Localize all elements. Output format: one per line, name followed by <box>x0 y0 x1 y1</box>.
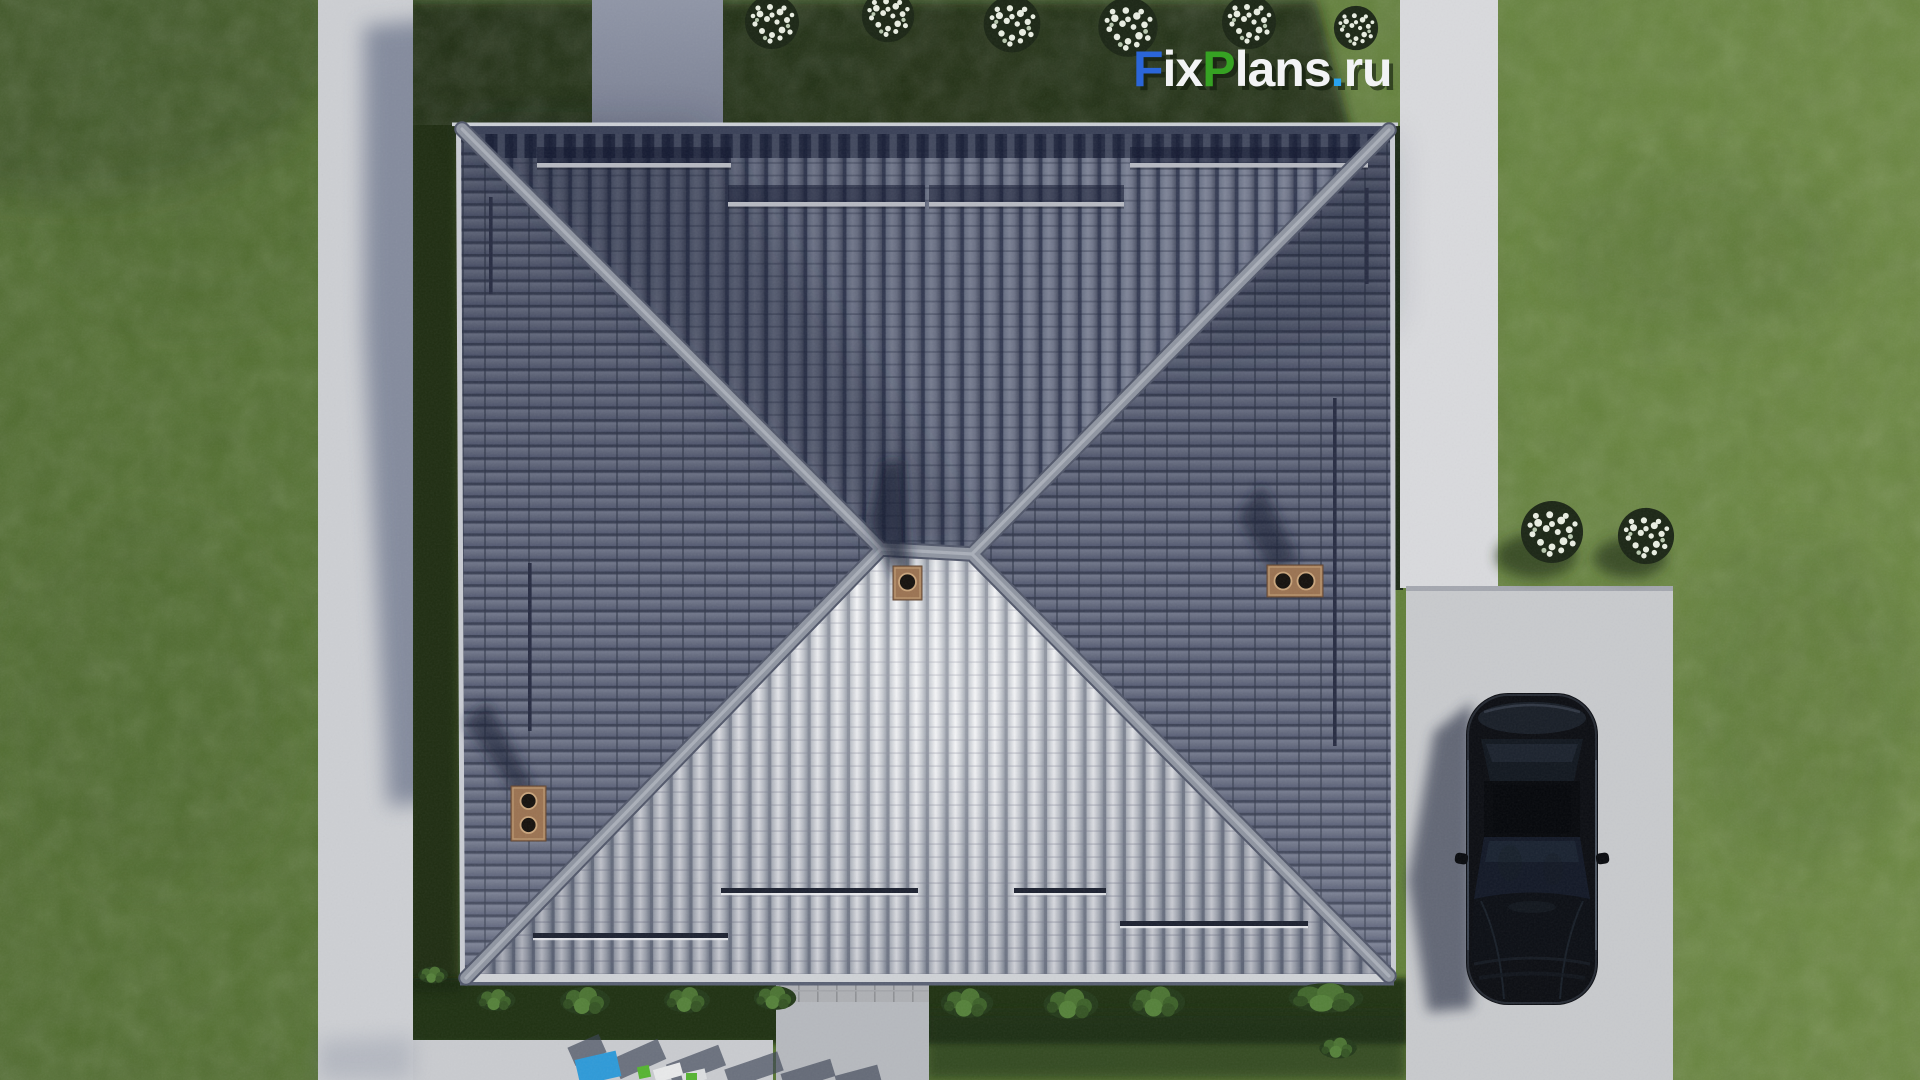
svg-text:FixPlans.ru: FixPlans.ru <box>1133 41 1392 97</box>
